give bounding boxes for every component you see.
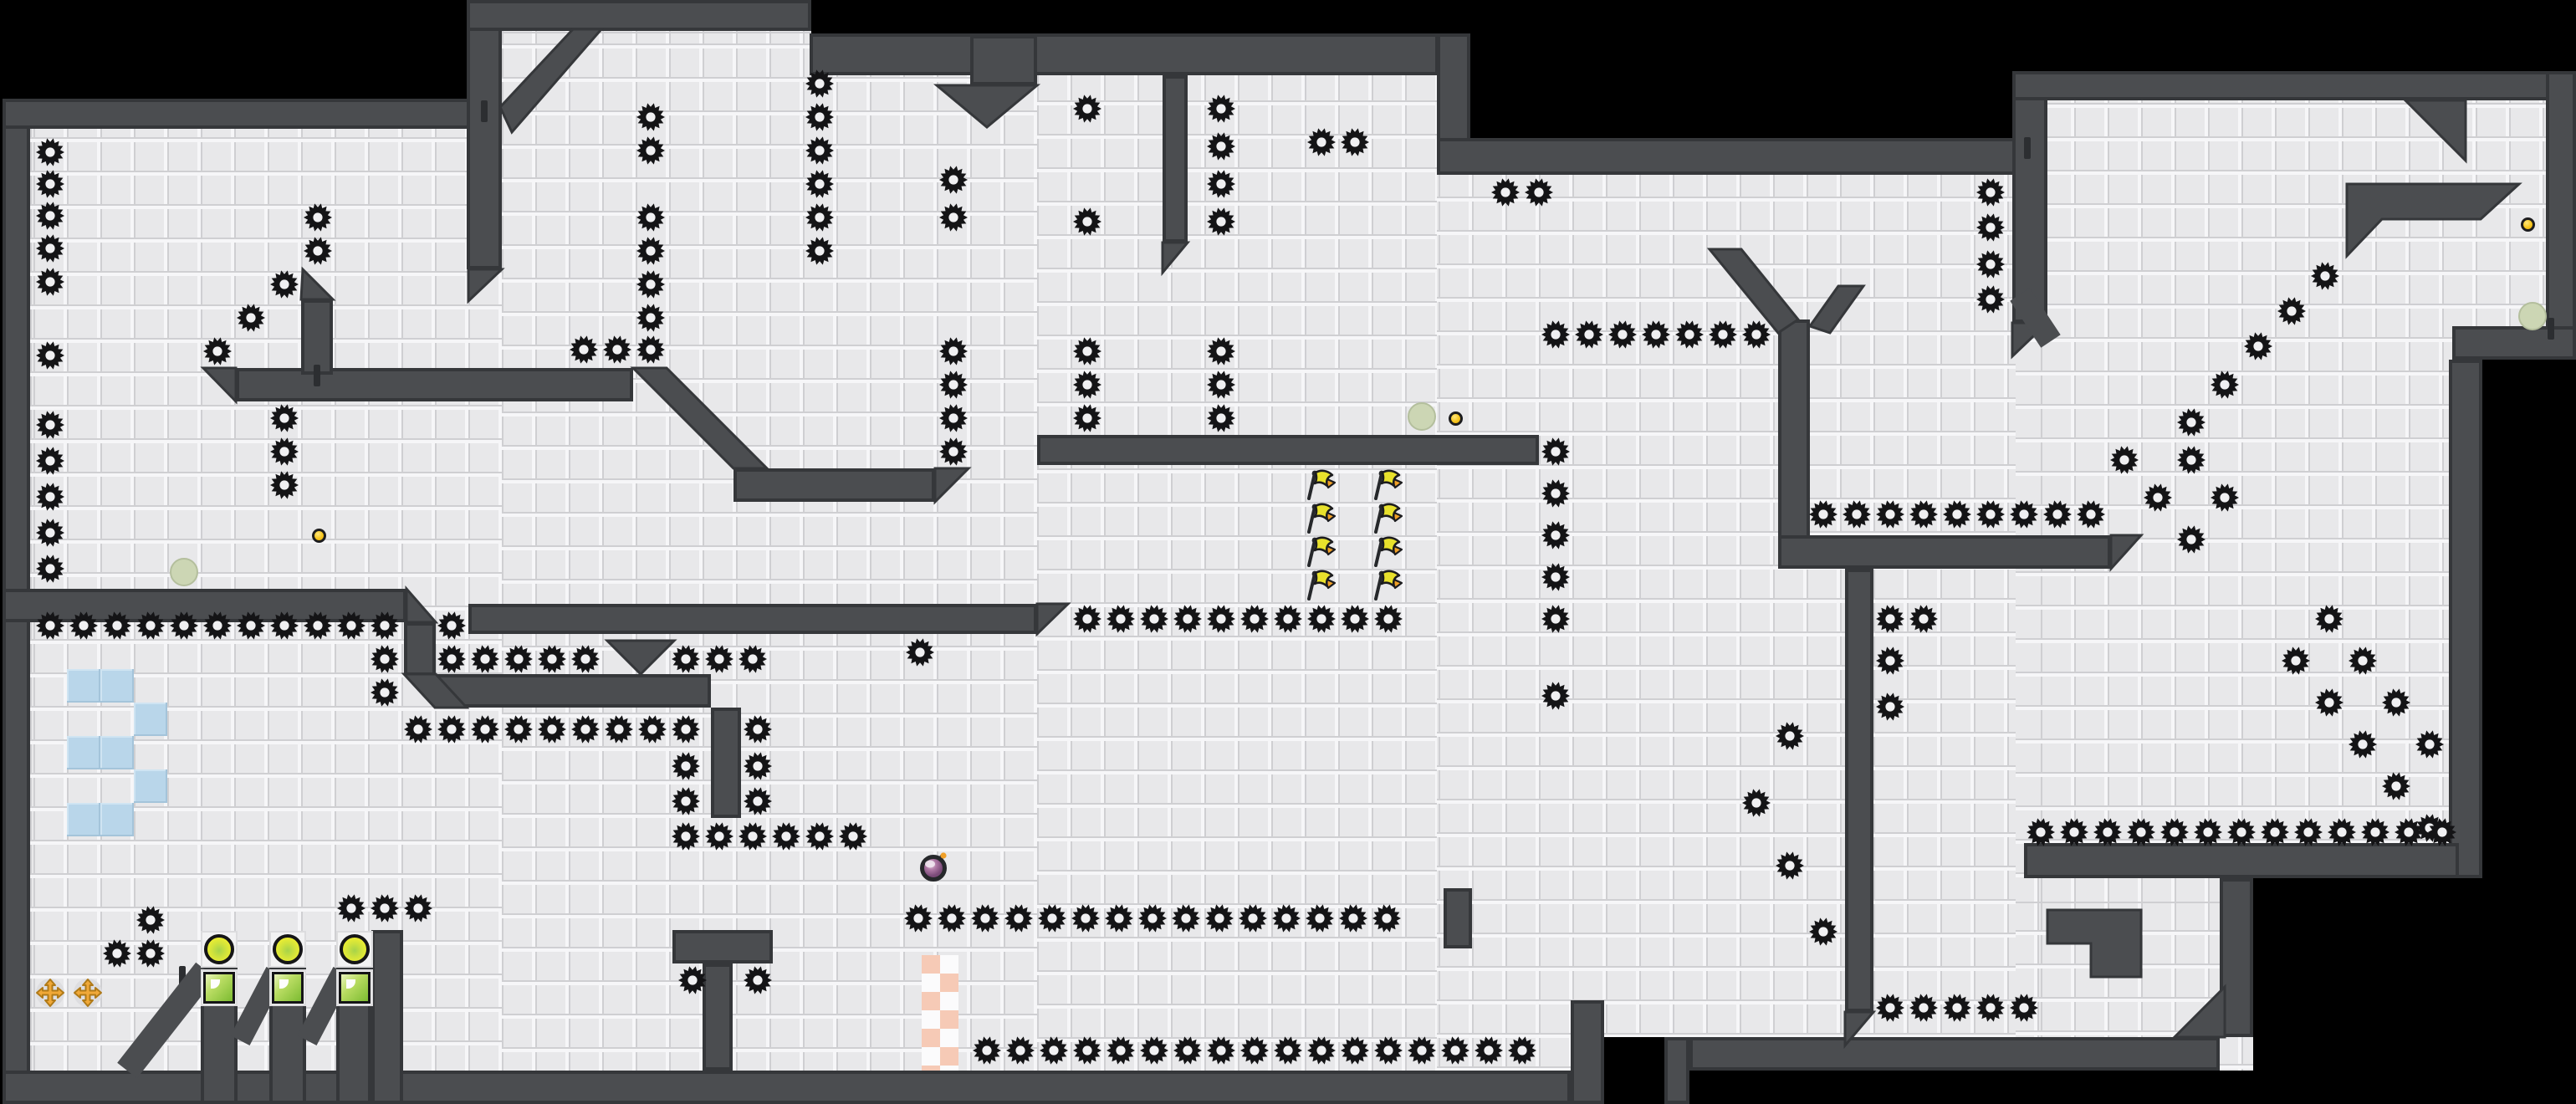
door-highlight-notch [346,979,355,989]
wall-block [2024,843,2459,878]
exit-door-tile [336,969,373,1006]
floor-area [30,99,502,1074]
void-area [0,0,473,99]
exit-door[interactable] [339,972,371,1004]
wall-block [2452,326,2576,360]
checker-cell [940,1047,958,1066]
door-highlight-notch [211,979,220,989]
blue-tile [67,669,100,703]
wall-block [672,930,773,963]
wall-seam-tick [314,365,320,386]
void-area [811,0,1437,35]
wall-block [1444,888,1472,948]
wall-seam-tick [481,100,488,122]
wall-block [1778,535,2111,569]
blue-tile [100,736,134,769]
wall-block [1437,138,2016,175]
exit-door-tile [201,969,238,1006]
coin-icon[interactable] [1449,411,1463,426]
void-area [1664,1071,2253,1104]
wall-block [703,963,733,1071]
level-canvas[interactable] [0,0,2576,1104]
checker-cell [922,1010,940,1029]
wall-block [1437,33,1470,142]
checker-cell [940,974,958,992]
wall-block [236,368,633,401]
wall-block [468,604,1037,634]
checker-cell [940,1010,958,1029]
door-switch-tile [336,931,373,968]
checker-cell [940,1029,958,1047]
wall-block [404,622,436,676]
wall-seam-tick [179,966,186,988]
checker-cell [922,1047,940,1066]
exit-door[interactable] [272,972,304,1004]
wall-block [733,468,935,502]
wall-block [2220,878,2253,1037]
blue-tile [134,703,167,736]
spawn-circle [1408,402,1436,431]
wall-block [2449,360,2482,878]
wall-block [2012,71,2047,323]
wall-block [467,0,502,269]
wall-block [3,99,473,129]
wall-block [301,299,333,375]
wall-block [1778,319,1810,564]
floor-area [1437,140,2016,1074]
blue-tile [67,803,100,836]
wall-block [1664,1037,1689,1104]
coin-icon[interactable] [2521,217,2535,232]
blue-tile [67,736,100,769]
door-switch[interactable] [340,934,370,964]
wall-block [2012,71,2576,100]
wall-seam-tick [2024,137,2031,159]
wall-block [1689,1037,2220,1071]
void-area [1604,1037,1664,1104]
wall-block [435,674,711,708]
void-area [1437,0,2016,140]
void-area [2012,0,2576,71]
blue-tile [100,803,134,836]
exit-door[interactable] [203,972,235,1004]
wall-block [970,35,1037,85]
wall-block [2546,71,2576,360]
wall-block [810,33,1439,75]
exit-door-tile [269,969,306,1006]
spawn-circle [170,558,198,586]
checker-cell [940,992,958,1010]
wall-block [1571,1000,1604,1104]
wall-block [467,0,811,31]
blue-tile [134,769,167,803]
wall-seam-tick [2548,318,2554,340]
wall-block [711,708,741,818]
spawn-circle [2518,302,2547,330]
wall-block [1163,75,1188,243]
wall-block [371,930,403,1104]
wall-block [3,589,406,622]
checker-cell [922,1029,940,1047]
floor-area [502,25,1037,1074]
void-area [2253,878,2576,1104]
checker-cell [922,992,940,1010]
blue-tile [100,669,134,703]
wall-block [1845,569,1873,1012]
door-switch-tile [269,931,306,968]
checker-cell [922,974,940,992]
checker-cell [940,955,958,974]
door-switch[interactable] [273,934,303,964]
door-highlight-notch [279,979,289,989]
door-switch-tile [201,931,238,968]
door-switch[interactable] [204,934,234,964]
checker-cell [922,955,940,974]
wall-block [1037,435,1539,465]
floor-area [1037,35,1437,1074]
coin-icon[interactable] [312,529,326,543]
wall-block [3,1071,1571,1104]
